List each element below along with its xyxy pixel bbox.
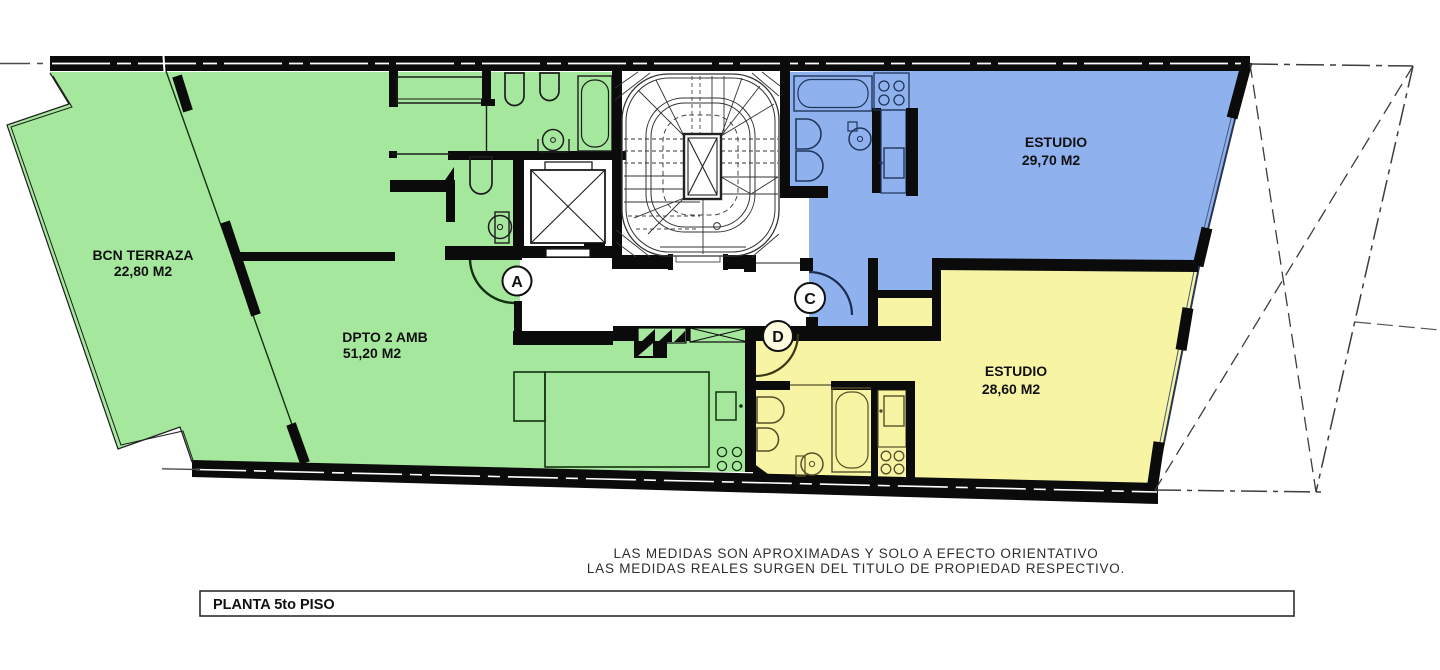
svg-text:28,60 M2: 28,60 M2	[982, 381, 1041, 397]
svg-text:PLANTA 5to PISO: PLANTA 5to PISO	[213, 597, 335, 613]
svg-text:C: C	[804, 291, 816, 308]
svg-text:ESTUDIO: ESTUDIO	[985, 363, 1047, 379]
svg-text:29,70 M2: 29,70 M2	[1022, 152, 1081, 168]
svg-text:51,20 M2: 51,20 M2	[343, 345, 402, 361]
svg-text:22,80 M2: 22,80 M2	[114, 263, 173, 279]
svg-text:LAS MEDIDAS SON APROXIMADAS Y: LAS MEDIDAS SON APROXIMADAS Y SOLO A EFE…	[613, 546, 1098, 561]
svg-text:BCN TERRAZA: BCN TERRAZA	[92, 247, 193, 263]
svg-text:ESTUDIO: ESTUDIO	[1025, 134, 1087, 150]
svg-text:A: A	[511, 274, 523, 291]
svg-text:LAS MEDIDAS REALES SURGEN DEL: LAS MEDIDAS REALES SURGEN DEL TITULO DE …	[587, 561, 1125, 576]
svg-text:DPTO 2 AMB: DPTO 2 AMB	[342, 329, 428, 345]
svg-text:D: D	[772, 329, 784, 346]
